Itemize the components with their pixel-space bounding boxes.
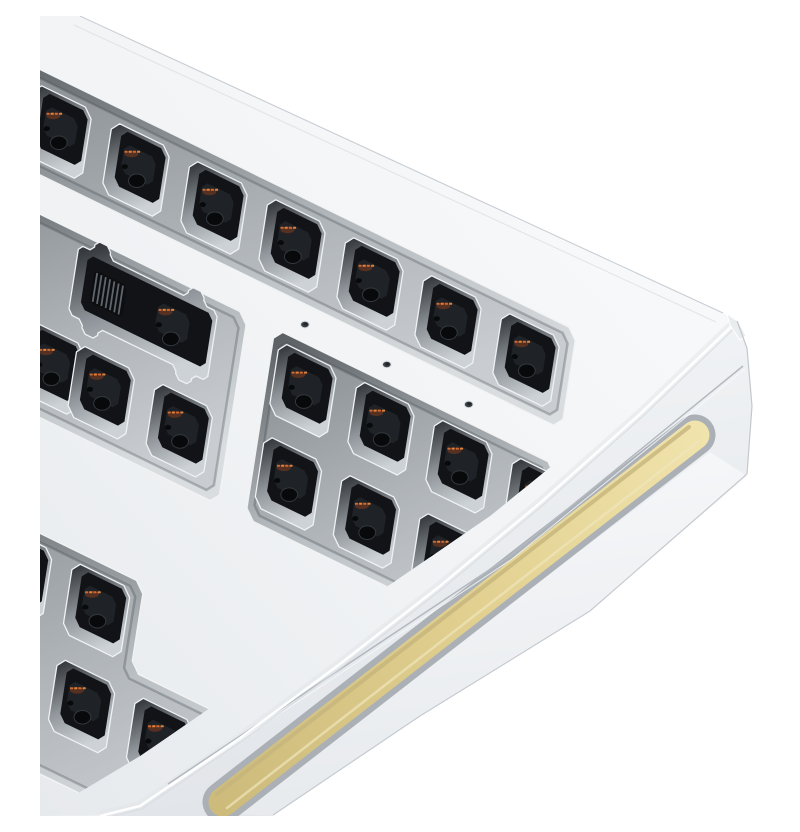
switch-hole xyxy=(284,250,301,264)
contact-pin xyxy=(102,374,105,376)
contact-pin xyxy=(98,374,101,376)
contact-pin xyxy=(367,265,370,267)
contact-pin xyxy=(460,448,463,450)
contact-pin xyxy=(98,591,101,593)
contact-pin xyxy=(441,541,444,543)
led-hole xyxy=(352,516,358,521)
led-hole xyxy=(87,387,93,392)
contact-pin xyxy=(363,265,366,267)
contact-pin xyxy=(355,503,358,505)
product-render xyxy=(40,16,800,816)
contact-pin xyxy=(437,541,440,543)
contact-pin xyxy=(378,410,381,412)
contact-pin xyxy=(152,725,155,727)
switch-hole xyxy=(43,372,60,386)
led-hole xyxy=(67,701,73,706)
contact-pin xyxy=(363,503,366,505)
led-hole xyxy=(356,278,362,283)
switch-hole xyxy=(128,174,145,188)
switch-hole xyxy=(295,395,312,409)
contact-pin xyxy=(163,309,166,311)
contact-pin xyxy=(289,227,292,229)
contact-pin xyxy=(445,303,448,305)
keyboard-render xyxy=(40,16,800,816)
contact-pin xyxy=(93,591,96,593)
contact-pin xyxy=(59,113,62,115)
contact-pin xyxy=(70,687,73,689)
switch-hole xyxy=(89,614,106,628)
contact-pin xyxy=(359,503,362,505)
contact-pin xyxy=(78,687,81,689)
contact-pin xyxy=(300,372,303,374)
switch-hole xyxy=(94,397,111,411)
contact-pin xyxy=(74,687,77,689)
contact-pin xyxy=(527,341,530,343)
contact-pin xyxy=(281,465,284,467)
contact-pin xyxy=(168,412,171,414)
contact-pin xyxy=(456,448,459,450)
keyboard-case xyxy=(40,16,752,816)
contact-pin xyxy=(171,309,174,311)
contact-pin xyxy=(369,410,372,412)
switch-hole xyxy=(281,488,298,502)
led-hole xyxy=(274,478,280,483)
led-hole xyxy=(289,385,295,390)
contact-pin xyxy=(129,151,132,153)
led-hole xyxy=(122,164,128,169)
contact-pin xyxy=(46,113,49,115)
led-hole xyxy=(367,423,373,428)
contact-pin xyxy=(289,465,292,467)
switch-hole xyxy=(50,136,67,150)
contact-pin xyxy=(280,227,283,229)
contact-pin xyxy=(159,309,162,311)
led-hole xyxy=(512,354,518,359)
screw-hole-center xyxy=(385,363,389,366)
switch-hole xyxy=(74,710,91,724)
contact-pin xyxy=(211,189,214,191)
contact-pin xyxy=(52,349,55,351)
contact-pin xyxy=(85,591,88,593)
contact-pin xyxy=(133,151,136,153)
contact-pin xyxy=(180,412,183,414)
contact-pin xyxy=(514,341,517,343)
contact-pin xyxy=(382,410,385,412)
led-hole xyxy=(445,461,451,466)
contact-pin xyxy=(452,448,455,450)
contact-pin xyxy=(371,265,374,267)
led-hole xyxy=(82,605,88,610)
contact-pin xyxy=(156,725,159,727)
switch-hole xyxy=(172,435,189,449)
led-hole xyxy=(278,240,284,245)
switch-hole xyxy=(362,288,379,302)
contact-pin xyxy=(90,374,93,376)
switch-hole xyxy=(206,212,223,226)
screw-hole-center xyxy=(467,402,471,405)
contact-pin xyxy=(137,151,140,153)
contact-pin xyxy=(202,189,205,191)
led-hole xyxy=(44,126,50,131)
switch-hole xyxy=(359,526,376,540)
contact-pin xyxy=(40,349,42,351)
led-hole xyxy=(145,739,151,744)
contact-pin xyxy=(433,541,436,543)
contact-pin xyxy=(436,303,439,305)
contact-pin xyxy=(374,410,377,412)
contact-pin xyxy=(367,503,370,505)
contact-pin xyxy=(83,687,86,689)
contact-pin xyxy=(291,372,294,374)
contact-pin xyxy=(304,372,307,374)
contact-pin xyxy=(207,189,210,191)
contact-pin xyxy=(55,113,58,115)
contact-pin xyxy=(277,465,280,467)
contact-pin xyxy=(285,227,288,229)
switch-hole xyxy=(373,433,390,447)
contact-pin xyxy=(445,541,448,543)
contact-pin xyxy=(296,372,299,374)
contact-pin xyxy=(161,725,164,727)
contact-pin xyxy=(176,412,179,414)
contact-pin xyxy=(94,374,97,376)
contact-pin xyxy=(43,349,46,351)
contact-pin xyxy=(519,341,522,343)
contact-pin xyxy=(167,309,170,311)
contact-pin xyxy=(148,725,151,727)
contact-pin xyxy=(447,448,450,450)
contact-pin xyxy=(285,465,288,467)
contact-pin xyxy=(523,341,526,343)
contact-pin xyxy=(51,113,54,115)
switch-hole xyxy=(451,471,468,485)
led-hole xyxy=(434,316,440,321)
screw-hole-center xyxy=(304,323,308,326)
led-hole xyxy=(156,322,162,327)
contact-pin xyxy=(293,227,296,229)
switch-hole xyxy=(518,364,535,378)
switch-hole xyxy=(440,326,457,340)
contact-pin xyxy=(441,303,444,305)
led-hole xyxy=(165,425,171,430)
contact-pin xyxy=(215,189,218,191)
switch-hole xyxy=(162,332,179,346)
contact-pin xyxy=(47,349,50,351)
contact-pin xyxy=(449,303,452,305)
led-hole xyxy=(200,202,206,207)
contact-pin xyxy=(358,265,361,267)
contact-pin xyxy=(124,151,127,153)
contact-pin xyxy=(172,412,175,414)
contact-pin xyxy=(89,591,92,593)
